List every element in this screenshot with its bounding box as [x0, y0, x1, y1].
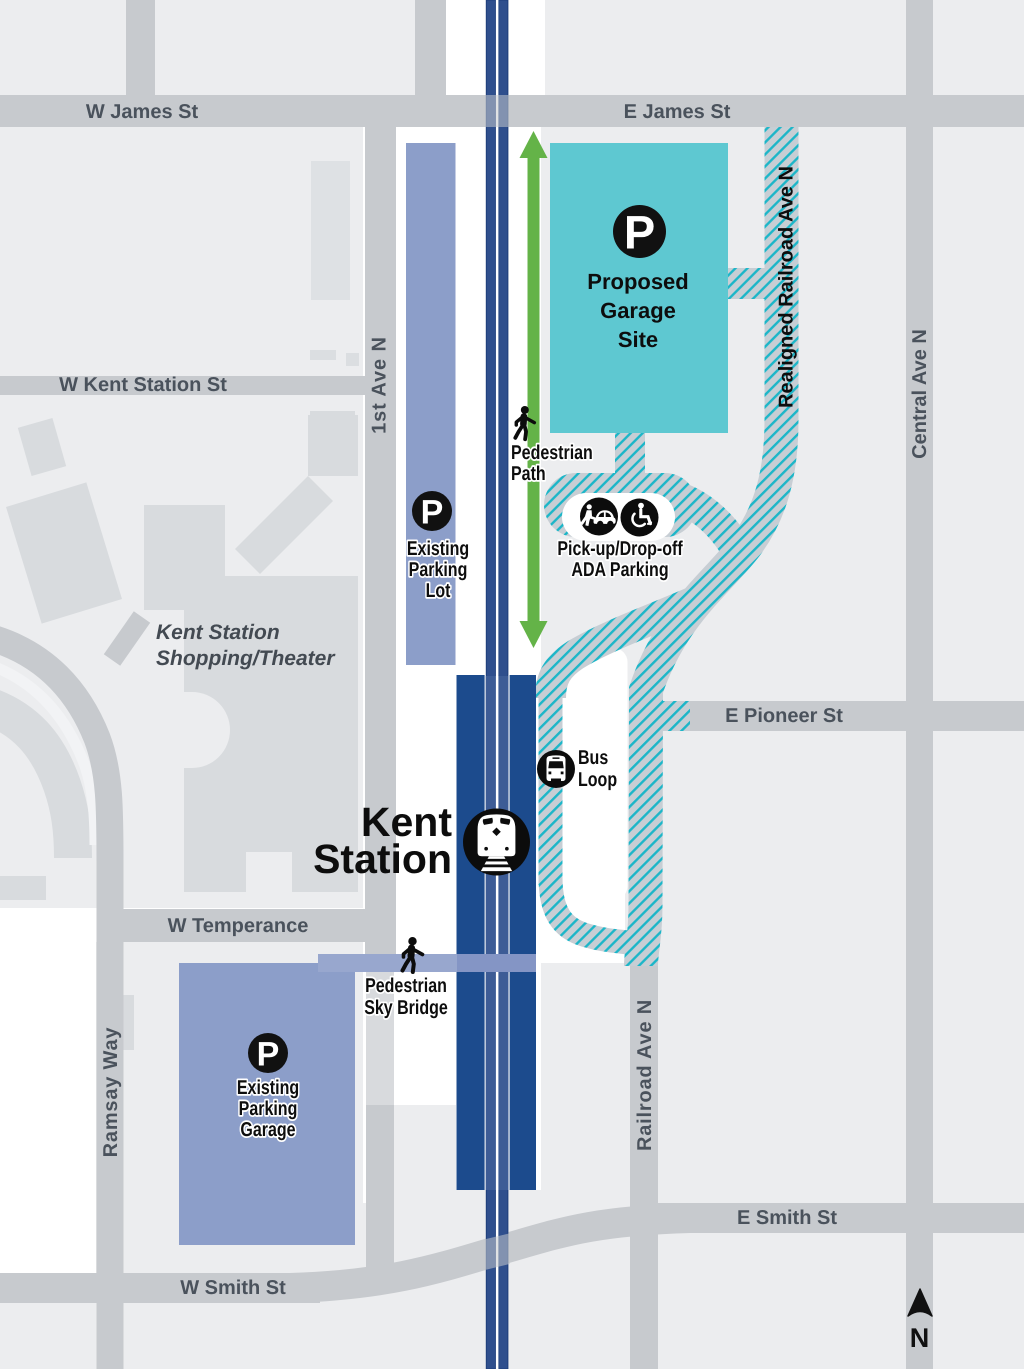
svg-text:Ramsay Way: Ramsay Way: [100, 1027, 122, 1158]
svg-text:Pedestrian: Pedestrian: [365, 975, 447, 997]
svg-text:E Smith St: E Smith St: [737, 1207, 837, 1229]
svg-text:Sky Bridge: Sky Bridge: [364, 997, 448, 1019]
svg-text:N: N: [910, 1323, 930, 1353]
svg-text:P: P: [257, 1036, 280, 1074]
svg-text:Pedestrian: Pedestrian: [511, 442, 593, 464]
svg-text:Path: Path: [511, 463, 546, 485]
svg-text:P: P: [624, 206, 655, 259]
svg-text:Bus: Bus: [578, 747, 608, 769]
svg-text:Lot: Lot: [426, 580, 451, 602]
svg-text:P: P: [421, 494, 444, 532]
svg-text:Kent Station: Kent Station: [156, 621, 280, 644]
svg-text:W Temperance: W Temperance: [168, 915, 309, 937]
svg-text:Parking: Parking: [239, 1098, 298, 1120]
svg-text:W Smith St: W Smith St: [180, 1277, 286, 1299]
svg-text:Pick-up/Drop-off: Pick-up/Drop-off: [557, 538, 683, 560]
svg-text:Loop: Loop: [578, 769, 617, 791]
svg-text:Parking: Parking: [409, 559, 468, 581]
svg-text:Site: Site: [618, 327, 658, 352]
svg-text:Garage: Garage: [600, 298, 676, 323]
svg-text:Realigned Railroad Ave N: Realigned Railroad Ave N: [776, 166, 798, 408]
svg-text:E Pioneer St: E Pioneer St: [725, 705, 843, 727]
svg-text:Railroad Ave N: Railroad Ave N: [634, 999, 656, 1151]
svg-text:Garage: Garage: [240, 1119, 295, 1141]
svg-text:Shopping/Theater: Shopping/Theater: [156, 647, 336, 670]
svg-text:Proposed: Proposed: [587, 269, 688, 294]
svg-text:W James St: W James St: [86, 101, 199, 123]
svg-text:W Kent Station St: W Kent Station St: [59, 374, 227, 396]
svg-text:1st Ave N: 1st Ave N: [369, 336, 391, 434]
svg-text:E James St: E James St: [624, 101, 731, 123]
svg-text:Existing: Existing: [237, 1077, 299, 1099]
svg-text:Central Ave N: Central Ave N: [909, 329, 931, 459]
svg-text:Existing: Existing: [407, 538, 469, 560]
svg-text:ADA Parking: ADA Parking: [571, 559, 668, 581]
svg-text:Station: Station: [313, 836, 452, 882]
